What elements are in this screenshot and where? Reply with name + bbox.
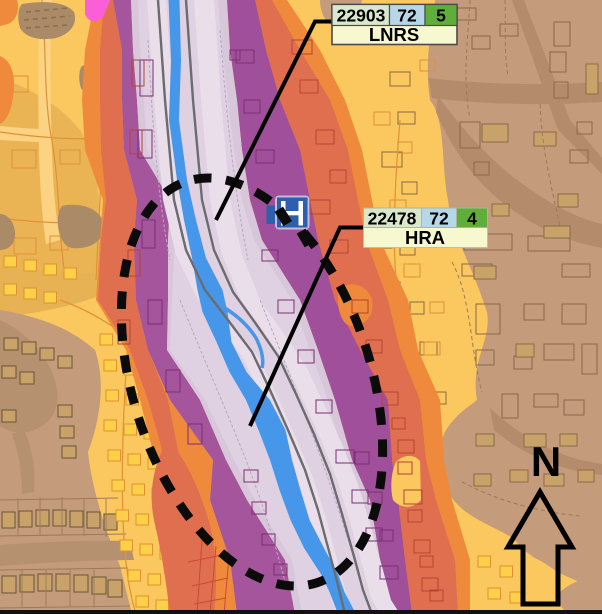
svg-text:4: 4 xyxy=(467,209,477,229)
svg-text:N: N xyxy=(531,438,561,485)
svg-text:22478: 22478 xyxy=(368,209,417,229)
svg-text:72: 72 xyxy=(429,209,449,229)
svg-text:5: 5 xyxy=(436,6,446,26)
svg-text:LNRS: LNRS xyxy=(369,24,419,45)
svg-text:72: 72 xyxy=(397,6,417,26)
svg-text:22903: 22903 xyxy=(337,6,386,26)
svg-text:HRA: HRA xyxy=(405,227,445,248)
